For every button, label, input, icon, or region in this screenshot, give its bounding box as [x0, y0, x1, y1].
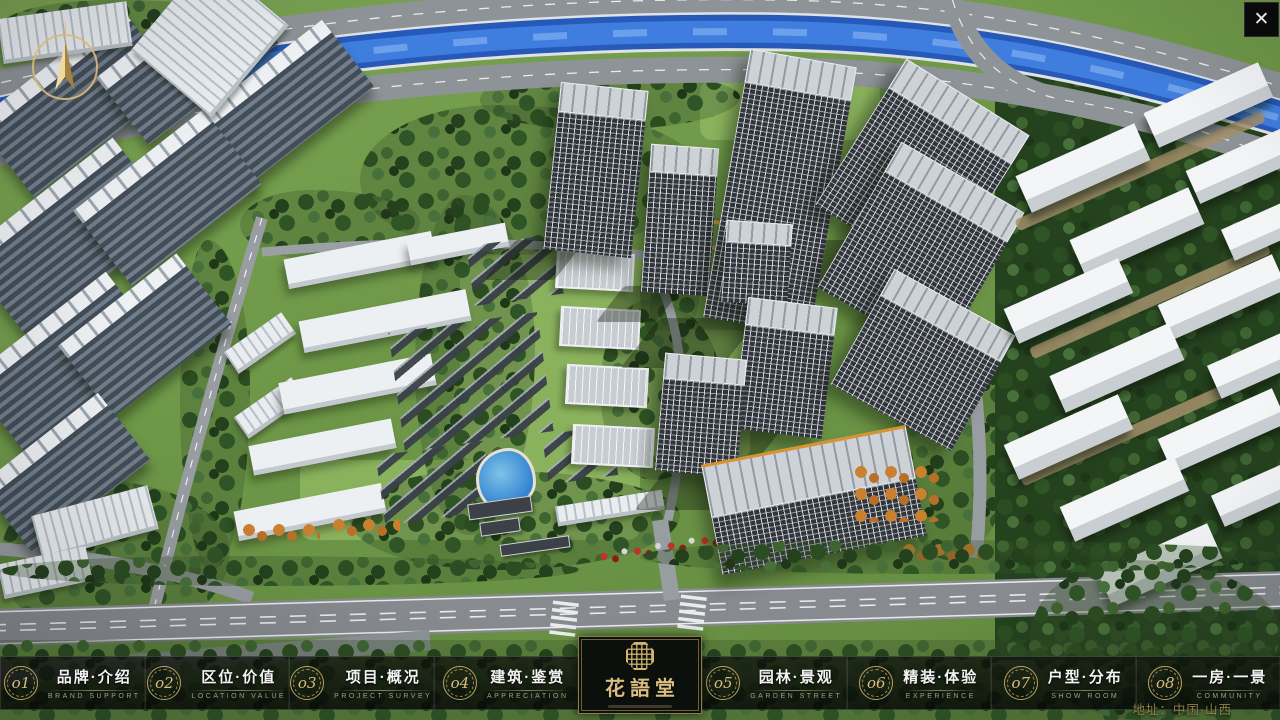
nav-number: o8: [1156, 674, 1175, 692]
nav-subtitle: APPRECIATION: [487, 693, 569, 700]
nav-number-badge: o1: [4, 666, 38, 700]
nav-title: 园林·景观: [759, 666, 834, 687]
nav-title: 精装·体验: [903, 666, 978, 687]
tower-block: [721, 220, 793, 306]
nav-number-badge: o8: [1148, 666, 1182, 700]
nav-item-project[interactable]: o3 项目·概况PROJECT SURVEY: [289, 657, 434, 709]
villa-cluster: [388, 312, 553, 452]
nav-divider: [334, 690, 432, 691]
nav-subtitle: EXPERIENCE: [906, 693, 976, 700]
midrise-block: [565, 364, 649, 408]
nav-divider: [1192, 690, 1267, 691]
nav-subtitle: SHOW ROOM: [1051, 693, 1119, 700]
sales-presentation-screen: ✕ o1 品牌·介绍BRAND SUPPORT o2 区位·价值LOCATION…: [0, 0, 1280, 720]
nav-title: 品牌·介绍: [57, 666, 132, 687]
compass-stem: [65, 22, 66, 38]
tower-block: [641, 144, 719, 296]
nav-subtitle: LOCATION VALUE: [191, 693, 286, 700]
nav-divider: [487, 690, 569, 691]
nav-subtitle: PROJECT SURVEY: [334, 693, 432, 700]
nav-divider: [750, 690, 842, 691]
nav-number: o1: [12, 674, 31, 692]
nav-title: 区位·价值: [201, 666, 276, 687]
nav-number: o6: [867, 674, 886, 692]
nav-divider: [903, 690, 978, 691]
tower-block: [732, 297, 837, 439]
tower-block: [543, 82, 648, 258]
nav-number-badge: o6: [859, 666, 893, 700]
project-logo[interactable]: 花語堂: [578, 636, 702, 714]
logo-tagline-blur: [608, 705, 672, 708]
nav-divider: [48, 690, 141, 691]
nav-number: o7: [1011, 674, 1030, 692]
masterplan-render: [0, 0, 1280, 720]
nav-number-badge: o2: [147, 666, 181, 700]
nav-item-architecture[interactable]: o4 建筑·鉴赏APPRECIATION: [434, 657, 579, 709]
nav-title: 项目·概况: [346, 666, 421, 687]
nav-subtitle: GARDEN STREET: [750, 693, 842, 700]
project-logo-title: 花語堂: [600, 672, 680, 701]
autumn-trees: [240, 520, 320, 544]
autumn-trees: [330, 515, 400, 539]
nav-group-left: o1 品牌·介绍BRAND SUPPORT o2 区位·价值LOCATION V…: [0, 657, 578, 709]
close-icon: ✕: [1254, 9, 1270, 30]
nav-item-garden[interactable]: o5 园林·景观GARDEN STREET: [702, 657, 847, 709]
project-address: 地址：中国·山西: [1132, 699, 1232, 718]
nav-divider: [1048, 690, 1123, 691]
nav-number: o2: [155, 674, 174, 692]
nav-number-badge: o7: [1004, 666, 1038, 700]
nav-item-brand[interactable]: o1 品牌·介绍BRAND SUPPORT: [0, 657, 145, 709]
nav-title: 建筑·鉴赏: [490, 666, 565, 687]
nav-item-location[interactable]: o2 区位·价值LOCATION VALUE: [145, 657, 290, 709]
nav-divider: [191, 690, 286, 691]
compass: [32, 34, 98, 100]
nav-number: o5: [714, 674, 733, 692]
midrise-block: [571, 424, 655, 468]
nav-item-interior[interactable]: o6 精装·体验EXPERIENCE: [847, 657, 992, 709]
nav-number-badge: o3: [290, 666, 324, 700]
seal-icon: [626, 642, 654, 670]
nav-item-floorplan[interactable]: o7 户型·分布SHOW ROOM: [991, 657, 1136, 709]
nav-number: o4: [451, 674, 470, 692]
nav-number-badge: o5: [706, 666, 740, 700]
nav-title: 一房·一景: [1192, 666, 1267, 687]
nav-subtitle: BRAND SUPPORT: [48, 693, 141, 700]
close-button[interactable]: ✕: [1244, 2, 1279, 37]
nav-title: 户型·分布: [1048, 666, 1123, 687]
nav-number: o3: [298, 674, 317, 692]
nav-number-badge: o4: [443, 666, 477, 700]
autumn-trees: [852, 462, 942, 522]
compass-north-needle-icon: [52, 40, 78, 90]
